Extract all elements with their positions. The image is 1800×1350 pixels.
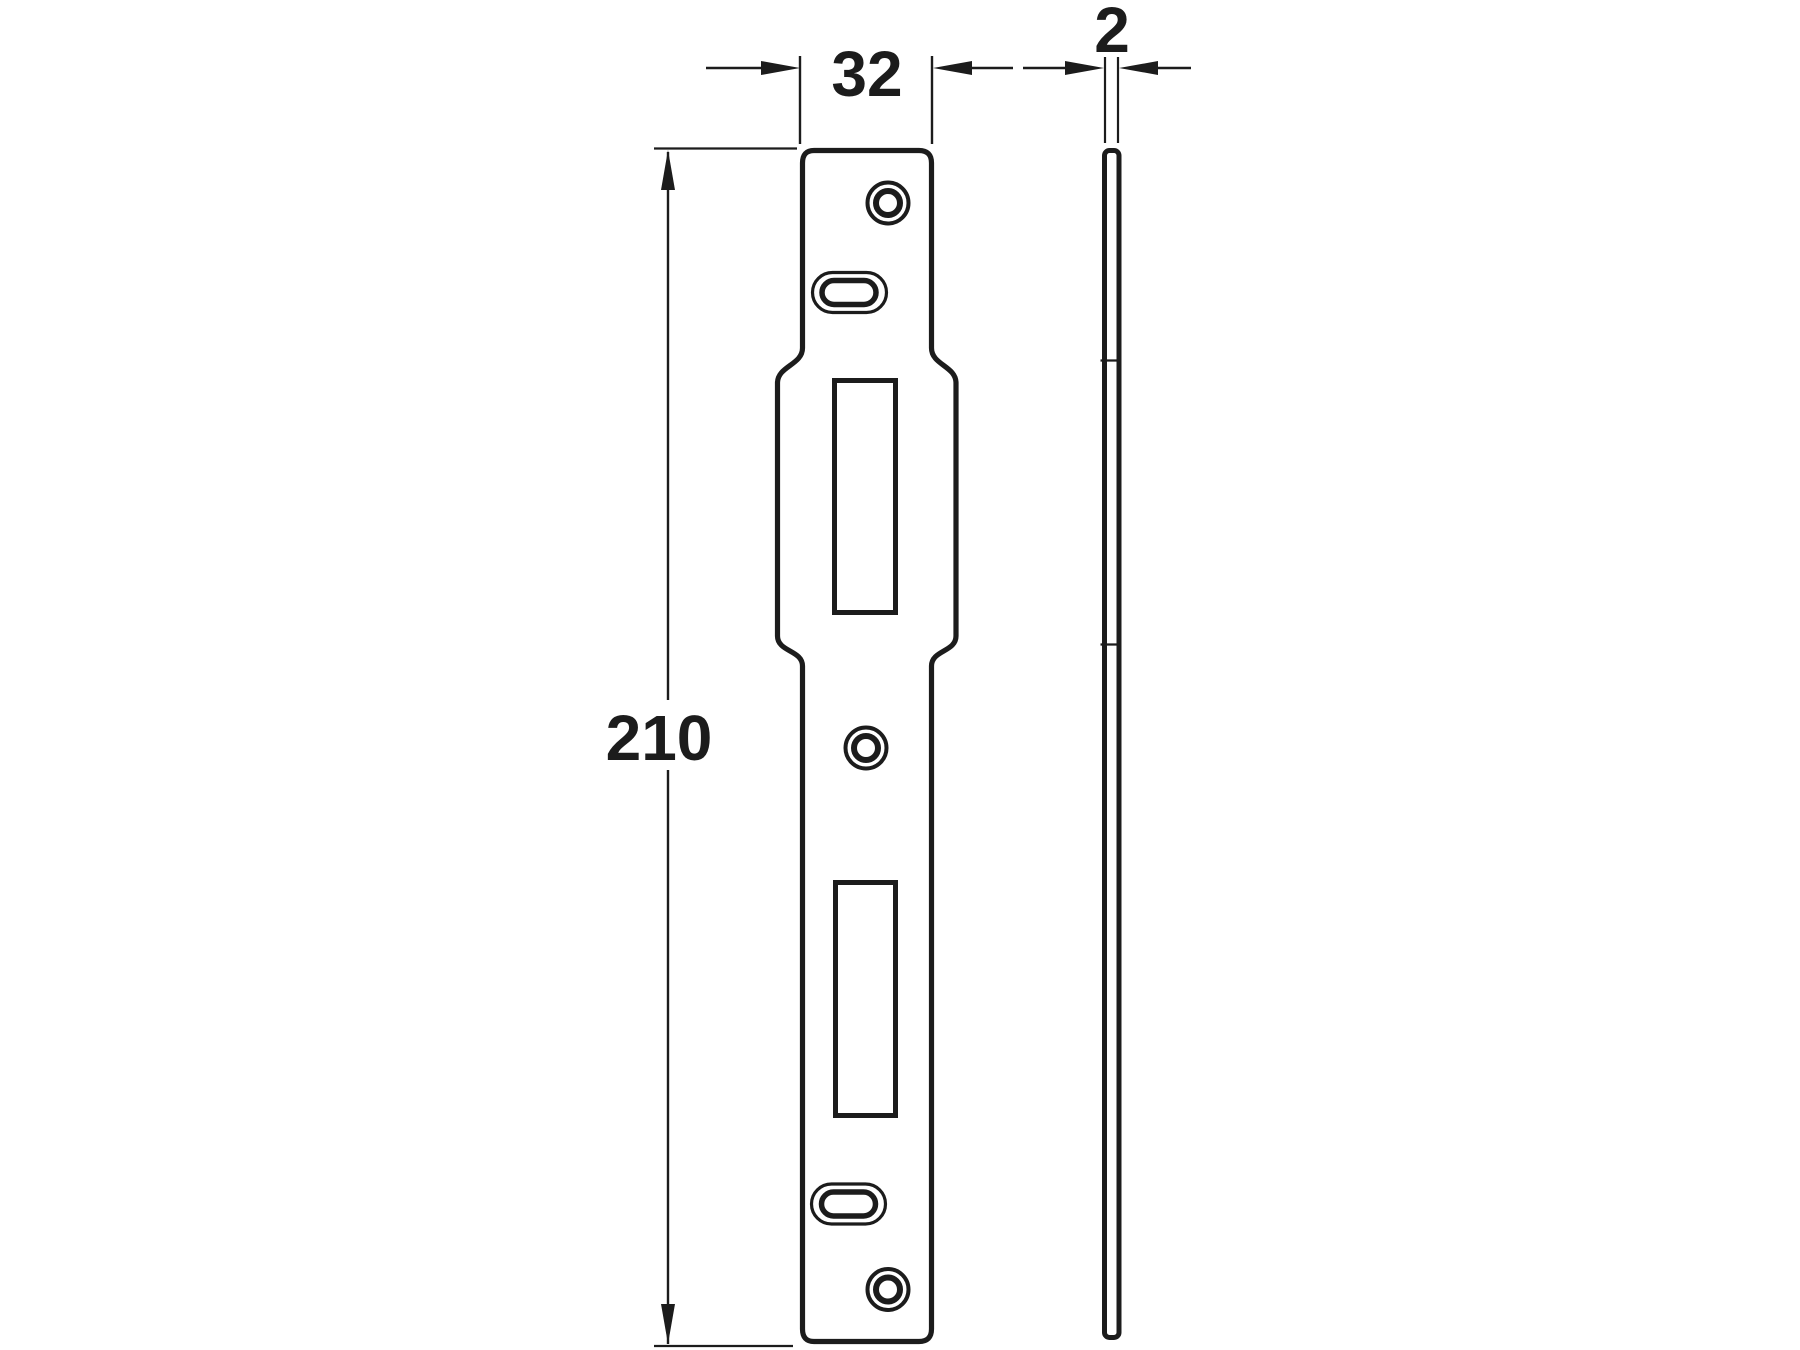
plate-outline xyxy=(778,151,957,1342)
latch-cutout-upper xyxy=(835,381,896,613)
strike-plate-drawing: 210 32 2 xyxy=(0,0,1800,1350)
front-view xyxy=(778,151,957,1342)
screw-hole-middle xyxy=(846,728,887,769)
side-profile-outline xyxy=(1105,151,1120,1338)
arrowhead-up-icon xyxy=(661,150,675,190)
thickness-dimension-label: 2 xyxy=(1094,0,1130,66)
height-dimension: 210 xyxy=(606,149,797,1347)
screw-hole-middle-bore xyxy=(854,736,878,760)
arrowhead-right-icon xyxy=(761,61,800,75)
screw-hole-top-bore xyxy=(876,191,900,215)
side-view xyxy=(1101,151,1122,1338)
technical-drawing-canvas: 210 32 2 xyxy=(0,0,1800,1350)
width-dimension-label: 32 xyxy=(831,38,902,110)
height-dimension-label: 210 xyxy=(606,702,713,774)
slot-bottom-inner xyxy=(822,1192,876,1216)
latch-cutout-lower xyxy=(836,883,896,1116)
slot-top xyxy=(813,273,887,313)
slot-bottom xyxy=(812,1184,886,1224)
thickness-dimension: 2 xyxy=(1023,0,1191,143)
screw-hole-bottom xyxy=(868,1269,909,1310)
slot-top-inner xyxy=(822,281,876,305)
screw-hole-bottom-bore xyxy=(876,1278,900,1302)
width-dimension: 32 xyxy=(706,38,1013,144)
arrowhead-left-icon xyxy=(933,61,972,75)
arrowhead-down-icon xyxy=(661,1304,675,1344)
screw-hole-top xyxy=(868,183,909,224)
